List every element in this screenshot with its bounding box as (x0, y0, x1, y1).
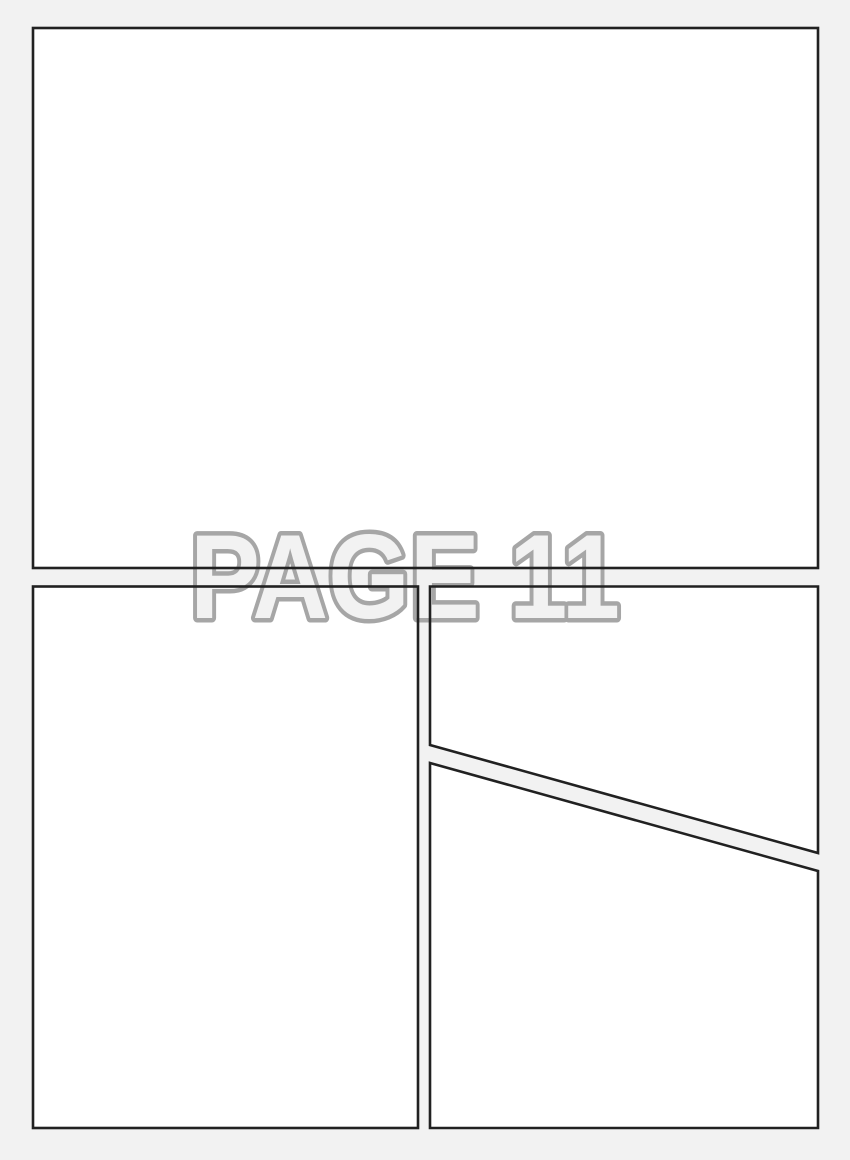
comic-page-template: PAGE 11 (0, 0, 850, 1160)
page-number-label: PAGE 11 (190, 510, 620, 644)
page-label-group: PAGE 11 (190, 510, 620, 644)
bottom-left-panel (33, 587, 418, 1129)
top-panel (33, 28, 818, 568)
